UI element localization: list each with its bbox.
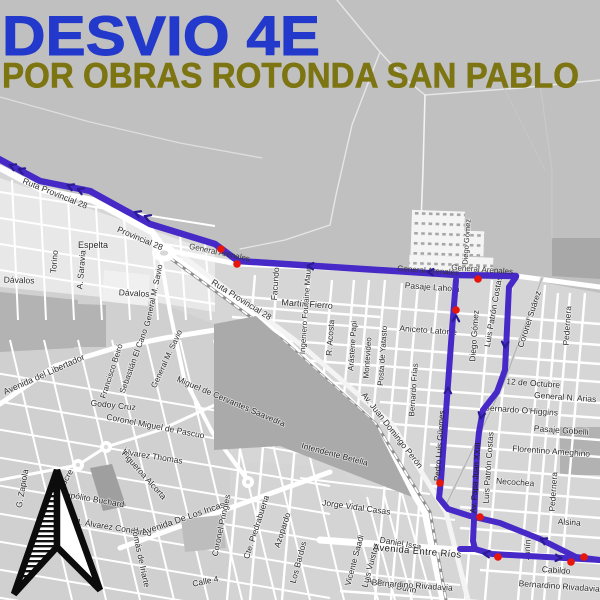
svg-text:Torino: Torino	[48, 250, 60, 274]
svg-text:Alsina: Alsina	[557, 516, 581, 528]
svg-text:Dávalos: Dávalos	[119, 287, 150, 299]
svg-text:POR OBRAS ROTONDA SAN PABLO: POR OBRAS ROTONDA SAN PABLO	[2, 57, 579, 96]
svg-text:Dávalos: Dávalos	[4, 274, 35, 285]
svg-text:Cabildo: Cabildo	[541, 564, 571, 576]
svg-text:Espelta: Espelta	[78, 240, 108, 250]
